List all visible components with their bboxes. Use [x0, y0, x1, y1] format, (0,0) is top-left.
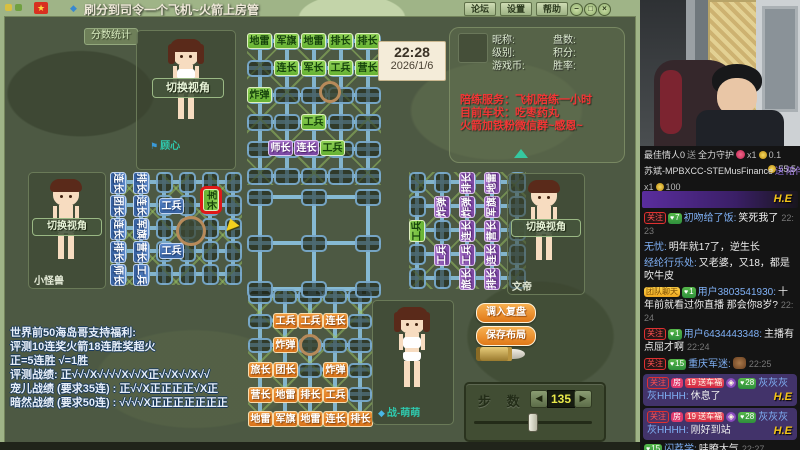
piece-旅长[interactable]: 旅长: [248, 362, 273, 378]
chat-message: 关注房19 送车福◈28灰灰灰灰HHHH:刚好到站H.E: [643, 408, 797, 440]
chat-text: 休息了: [691, 391, 721, 402]
board-slot: [248, 338, 272, 353]
piece-排长[interactable]: 排长: [459, 172, 475, 194]
coin-icon: [759, 151, 767, 159]
board-slot: [355, 189, 381, 206]
player-name-bottom: ◆战-萌萌: [378, 404, 420, 419]
gift-user: 苏斌-MPBXCC-STEMusFinance: [644, 166, 773, 176]
board-slot: [434, 172, 451, 193]
badge-room: 房: [671, 412, 683, 422]
board-slot: [247, 189, 273, 206]
piece-工兵[interactable]: 工兵: [159, 198, 184, 214]
board-slot: [323, 338, 347, 353]
chat-username: 初吻给了饭:: [684, 213, 737, 224]
piece-排长[interactable]: 排长: [484, 268, 500, 290]
switch-view-button-left[interactable]: 切换视角: [32, 218, 102, 236]
board-slot: [409, 196, 426, 217]
fan-club-tag: H.E: [774, 193, 792, 205]
notice-line-3: 火箭加铁粉微信群~感恩~: [460, 117, 583, 133]
piece-军旗[interactable]: 军旗: [484, 196, 500, 218]
board-slot: [409, 244, 426, 265]
piece-师长[interactable]: 师长: [268, 140, 293, 156]
gift-row: 苏斌-MPBXCC-STEMusFinance送陪伴飞机: [640, 163, 800, 179]
piece-连长[interactable]: 连长: [323, 411, 348, 427]
piece-地雷[interactable]: 地雷: [273, 387, 298, 403]
piece-工兵[interactable]: 工兵: [301, 114, 326, 130]
player-name-top: ⚑顾心: [150, 137, 180, 152]
webcam-window: [762, 6, 798, 112]
piece-军长[interactable]: 军长: [203, 189, 219, 211]
board-slot: [348, 314, 372, 329]
chat-text: 笑死我了: [738, 213, 778, 224]
board-slot: [247, 60, 273, 77]
chat-message: 关注15重庆军迷:22:25: [640, 356, 800, 372]
piece-炸弹[interactable]: 炸弹: [434, 196, 450, 218]
badge-fan: 15: [644, 444, 662, 450]
piece-排长[interactable]: 排长: [133, 172, 149, 194]
board-slot: [247, 281, 273, 298]
chat-message: 关注7初吻给了饭:笑死我了22:23: [640, 211, 800, 239]
badge-fan: 7: [668, 213, 682, 224]
piece-旅长[interactable]: 旅长: [459, 268, 475, 290]
piece-连长[interactable]: 连长: [459, 220, 475, 242]
fan-club-tag: H.E: [774, 391, 792, 404]
step-increment-button[interactable]: ▶: [574, 390, 592, 408]
badge-fan: 1: [682, 287, 696, 298]
piece-地雷[interactable]: 地雷: [298, 411, 323, 427]
piece-营长[interactable]: 营长: [355, 60, 380, 76]
flag-icon: ⚑: [150, 141, 158, 151]
board-slot: [247, 235, 273, 252]
bullet-icon: [476, 347, 512, 361]
board-slot: [348, 363, 372, 378]
board-slot: [274, 168, 300, 185]
sticker-emote: [733, 357, 746, 369]
step-count-value: 135: [547, 390, 575, 408]
diamond-icon: ◆: [378, 408, 385, 418]
camp-circle: [176, 216, 206, 246]
piece-团长[interactable]: 团长: [273, 362, 298, 378]
piece-排长[interactable]: 排长: [355, 33, 380, 49]
clock-time: 22:28: [379, 44, 445, 60]
board-slot: [301, 189, 327, 206]
badge-red: 关注: [644, 328, 666, 340]
piece-工兵[interactable]: 工兵: [320, 140, 345, 156]
gift-count: x1: [747, 150, 757, 160]
chat-message: 15闪荔学:哇瞭大气22:27: [640, 442, 800, 450]
info-avatar-box: [458, 33, 488, 63]
board-slot: [355, 168, 381, 185]
promo-line-6: 暗然战绩 (要求50连) : √√√√X正正正正正正正: [10, 394, 228, 410]
piece-工兵[interactable]: 工兵: [323, 387, 348, 403]
piece-军长[interactable]: 军长: [301, 60, 326, 76]
steps-label: 步 数: [478, 391, 526, 410]
entrance-banner: H.E: [642, 191, 798, 208]
board-slot: [156, 172, 173, 193]
board-slot: [328, 168, 354, 185]
chat-message: 关注1用户6434443348:主播有点屈才啊22:24: [640, 327, 800, 355]
piece-排长[interactable]: 排长: [298, 387, 323, 403]
player-name-left: 小怪兽: [34, 272, 64, 287]
clock-panel: 22:28 2026/1/6: [378, 41, 446, 81]
board-slot: [225, 264, 242, 285]
piece-军旗[interactable]: 军旗: [274, 33, 299, 49]
board-slot: [434, 268, 451, 289]
board-slot: [274, 114, 300, 131]
board-slot: [355, 281, 381, 298]
board-slot: [156, 218, 173, 239]
board-slot: [179, 264, 196, 285]
gift-feed: 最佳情人0送全力守护x10.155.5 苏斌-MPBXCC-STEMusFina…: [640, 147, 800, 195]
board-slot: [348, 338, 372, 353]
piece-工兵[interactable]: 工兵: [298, 313, 323, 329]
badge-gem: ◈: [726, 378, 736, 388]
piece-连长[interactable]: 连长: [110, 218, 126, 240]
chat-message: 团队聊天1用户3803541930:十年前就看过你直播 那会你8岁?22:24: [640, 285, 800, 326]
chat-message: 经纶行乐处:又老婆，又18，都是吹牛皮: [640, 256, 800, 284]
gift-action: 送: [687, 150, 696, 160]
piece-炸弹[interactable]: 炸弹: [247, 87, 272, 103]
badge-fan: 15: [668, 359, 686, 370]
badge-fan: 28: [738, 412, 756, 423]
board-slot: [202, 264, 219, 285]
piece-连长[interactable]: 连长: [294, 140, 319, 156]
chat-username: 用户3803541930:: [698, 287, 776, 298]
piece-地雷[interactable]: 地雷: [484, 172, 500, 194]
board-slot: [225, 195, 242, 216]
piece-地雷[interactable]: 地雷: [247, 33, 272, 49]
piece-连长[interactable]: 连长: [484, 244, 500, 266]
board-slot: [225, 241, 242, 262]
load-replay-button[interactable]: 调入复盘: [476, 303, 536, 323]
chat-username: 闪荔学:: [664, 444, 697, 450]
board-slot: [156, 264, 173, 285]
badge-fan: 1: [668, 329, 682, 340]
piece-工兵[interactable]: 工兵: [434, 244, 450, 266]
piece-师长[interactable]: 师长: [110, 264, 126, 286]
badge-red: 关注: [647, 377, 669, 389]
gift-value: 0.1: [769, 150, 782, 160]
chat-message-list[interactable]: 关注7初吻给了饭:笑死我了22:23无忧:明年就17了，逆生长经纶行乐处:又老婆…: [640, 211, 800, 450]
screen: ★ ◆ 刷分到司令一个飞机~火箭上房管 论坛 设置 帮助 − □ × 分数统计 …: [0, 0, 800, 450]
board-slot: [348, 387, 372, 402]
board-slot: [179, 172, 196, 193]
badge-gift: 19 送车福: [685, 378, 724, 388]
piece-炸弹[interactable]: 炸弹: [323, 362, 348, 378]
badge-gem: ◈: [726, 412, 736, 422]
chat-text: 哇瞭大气: [699, 444, 739, 450]
board-slot: [301, 281, 327, 298]
gift-row: 最佳情人0送全力守护x10.155.5: [640, 147, 800, 163]
board-slot: [202, 241, 219, 262]
piece-工兵[interactable]: 工兵: [273, 313, 298, 329]
piece-排长[interactable]: 排长: [348, 411, 373, 427]
badge-red: 关注: [647, 411, 669, 423]
badge-red: 关注: [644, 212, 666, 224]
piece-连长[interactable]: 连长: [110, 172, 126, 194]
camp-circle: [299, 334, 321, 356]
piece-军旗[interactable]: 军旗: [273, 411, 298, 427]
badge-fan: 28: [738, 378, 756, 389]
player-name-right: 文帝: [512, 278, 532, 293]
piece-团长[interactable]: 团长: [110, 195, 126, 217]
chat-sidebar: 最佳情人0送全力守护x10.155.5 苏斌-MPBXCC-STEMusFina…: [640, 0, 800, 450]
piece-排长[interactable]: 排长: [110, 241, 126, 263]
chat-timestamp: 22:25: [749, 359, 772, 369]
label-winrate: 胜率:: [553, 57, 576, 72]
board-slot: [301, 168, 327, 185]
board-slot: [434, 220, 451, 241]
step-decrement-button[interactable]: ◀: [530, 390, 548, 408]
piece-地雷[interactable]: 地雷: [248, 411, 273, 427]
webcam-video[interactable]: [640, 0, 800, 146]
board-slot: [248, 314, 272, 329]
board-slot: [247, 114, 273, 131]
chat-message: 无忧:明年就17了，逆生长: [640, 240, 800, 255]
coin-icon: [656, 183, 664, 191]
piece-炸弹[interactable]: 炸弹: [273, 337, 298, 353]
board-slot: [273, 289, 297, 304]
gift-icon: [736, 150, 745, 159]
badge-team: 团队聊天: [644, 287, 680, 297]
board-slot: [225, 172, 242, 193]
piece-地雷[interactable]: 地雷: [301, 33, 326, 49]
piece-工兵[interactable]: 工兵: [159, 243, 184, 259]
step-slider-handle[interactable]: [528, 413, 538, 432]
board-slot: [409, 172, 426, 193]
chat-timestamp: 22:24: [687, 342, 710, 352]
piece-营长[interactable]: 营长: [248, 387, 273, 403]
camp-circle: [319, 81, 341, 103]
badge-red: 关注: [644, 358, 666, 370]
board-slot: [247, 168, 273, 185]
board-slot: [355, 87, 381, 104]
chat-username: 无忧:: [644, 242, 667, 253]
board-slot: [409, 268, 426, 289]
piece-工兵[interactable]: 工兵: [133, 264, 149, 286]
piece-工兵[interactable]: 工兵: [459, 244, 475, 266]
window-bottom-bar: [0, 442, 640, 450]
label-coins: 游戏币:: [492, 57, 525, 72]
piece-工兵[interactable]: 工兵: [328, 60, 353, 76]
board-slot: [355, 235, 381, 252]
badge-room: 房: [671, 378, 683, 388]
board-slot: [274, 87, 300, 104]
chat-text: 刚好到站: [691, 425, 731, 436]
switch-view-button-top[interactable]: 切换视角: [152, 78, 224, 98]
gift-action: 送: [775, 166, 784, 176]
piece-工兵[interactable]: 工兵: [409, 220, 425, 242]
switch-view-button-right[interactable]: 切换视角: [511, 219, 581, 237]
piece-连长[interactable]: 连长: [133, 195, 149, 217]
piece-炸弹[interactable]: 炸弹: [459, 196, 475, 218]
chat-username: 用户6434443348:: [684, 329, 762, 340]
piece-排长[interactable]: 排长: [328, 33, 353, 49]
avatar-bottom-player: [396, 310, 428, 390]
fan-club-tag: H.E: [774, 425, 792, 438]
save-layout-button[interactable]: 保存布局: [476, 326, 536, 346]
piece-军旗[interactable]: 军旗: [133, 218, 149, 240]
chat-username: 重庆军迷:: [688, 359, 731, 370]
game-window: ★ ◆ 刷分到司令一个飞机~火箭上房管 论坛 设置 帮助 − □ × 分数统计 …: [0, 0, 640, 450]
piece-连长[interactable]: 连长: [323, 313, 348, 329]
board-slot: [301, 235, 327, 252]
streamer-body: [696, 110, 784, 146]
board-slot: [298, 363, 322, 378]
gift-name: 全力守护: [698, 150, 734, 160]
piece-连长[interactable]: 连长: [274, 60, 299, 76]
chat-username: 经纶行乐处:: [644, 258, 697, 269]
board-slot: [355, 114, 381, 131]
board-slot: [328, 114, 354, 131]
clock-date: 2026/1/6: [379, 60, 445, 72]
chat-text: 明年就17了，逆生长: [669, 242, 760, 253]
chat-timestamp: 22:27: [742, 444, 765, 450]
collapse-arrow-icon[interactable]: [514, 149, 528, 158]
piece-营长[interactable]: 营长: [133, 241, 149, 263]
gift-user: 最佳情人0: [644, 150, 685, 160]
board-slot: [355, 141, 381, 158]
piece-营长[interactable]: 营长: [484, 220, 500, 242]
gift-name: 陪伴飞机: [786, 166, 800, 176]
chat-message: 关注房19 送车福◈28灰灰灰灰HHHH:休息了H.E: [643, 374, 797, 406]
badge-gift: 19 送车福: [685, 412, 724, 422]
